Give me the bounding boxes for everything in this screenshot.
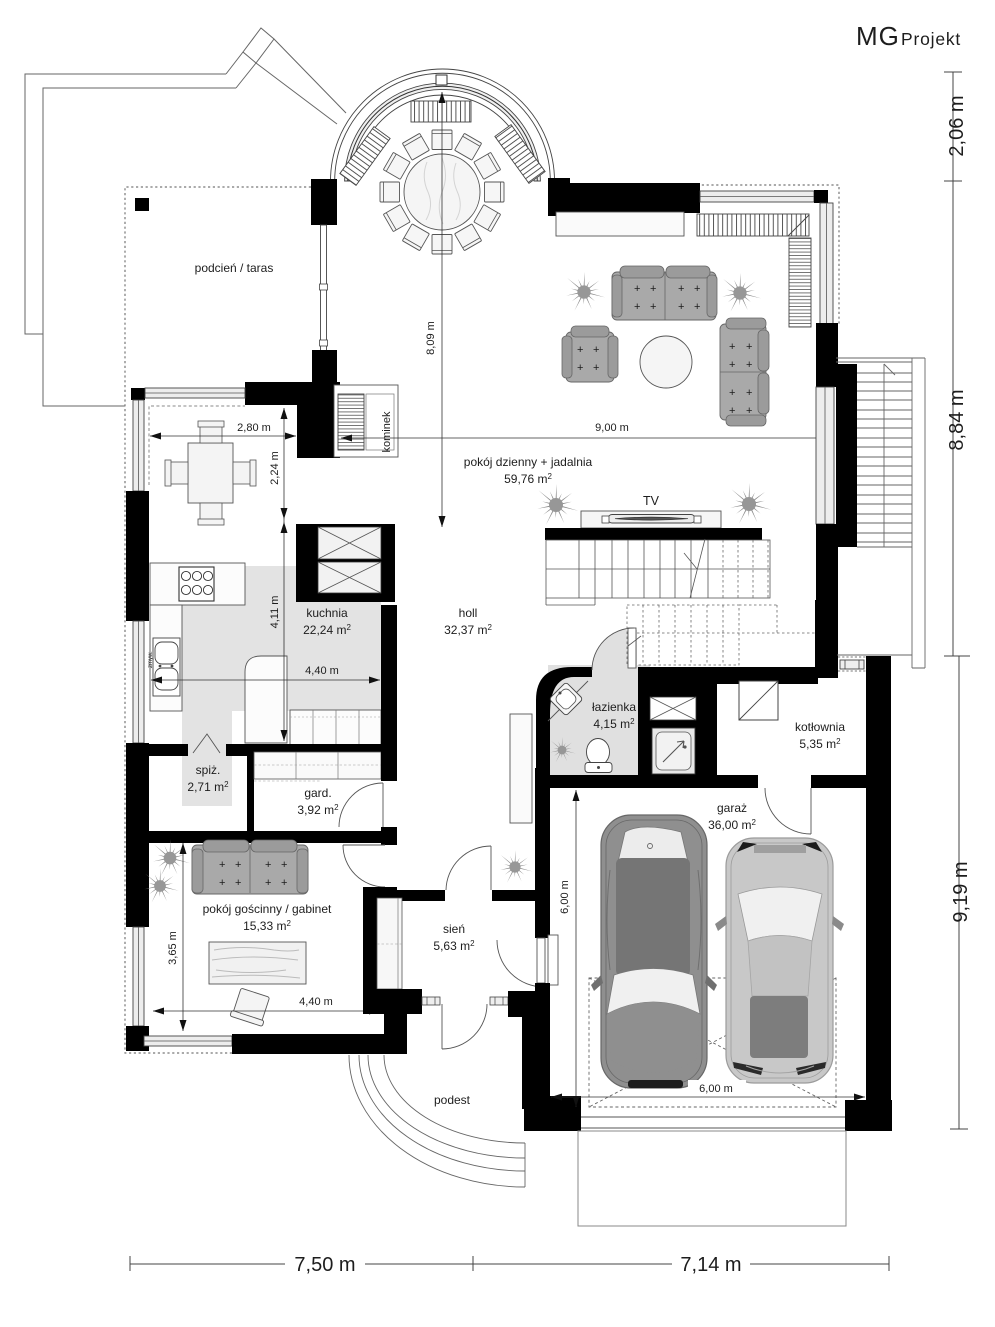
svg-text:podest: podest <box>434 1093 471 1107</box>
svg-text:4,40 m: 4,40 m <box>305 665 339 677</box>
svg-text:8,84 m: 8,84 m <box>946 389 968 450</box>
svg-text:59,76 m2: 59,76 m2 <box>504 472 552 486</box>
svg-text:32,37 m2: 32,37 m2 <box>444 623 492 637</box>
svg-text:+: + <box>577 344 583 356</box>
svg-text:gard.: gard. <box>304 786 331 800</box>
svg-text:+: + <box>746 387 752 399</box>
svg-text:+: + <box>650 283 656 295</box>
svg-text:MG: MG <box>856 21 900 51</box>
svg-text:+: + <box>634 283 640 295</box>
svg-text:+: + <box>678 283 684 295</box>
svg-text:pokój gościnny / gabinet: pokój gościnny / gabinet <box>203 902 332 916</box>
svg-text:+: + <box>219 859 225 871</box>
svg-text:7,50 m: 7,50 m <box>294 1254 355 1276</box>
svg-text:+: + <box>678 301 684 313</box>
svg-text:2,24 m: 2,24 m <box>269 451 281 485</box>
svg-text:+: + <box>281 877 287 889</box>
svg-text:+: + <box>265 859 271 871</box>
svg-text:kuchnia: kuchnia <box>306 606 348 620</box>
svg-text:+: + <box>235 877 241 889</box>
svg-text:podcień / taras: podcień / taras <box>195 261 274 275</box>
svg-text:4,11 m: 4,11 m <box>269 596 281 629</box>
svg-text:+: + <box>593 362 599 374</box>
svg-text:+: + <box>281 859 287 871</box>
svg-text:kominek: kominek <box>381 411 393 452</box>
svg-text:2,80 m: 2,80 m <box>237 422 271 434</box>
svg-text:+: + <box>729 387 735 399</box>
svg-text:3,92 m2: 3,92 m2 <box>297 803 339 817</box>
svg-text:4,15 m2: 4,15 m2 <box>593 717 635 731</box>
svg-text:zmyw.: zmyw. <box>148 651 154 668</box>
svg-text:6,00 m: 6,00 m <box>699 1083 733 1095</box>
svg-text:+: + <box>235 859 241 871</box>
svg-text:+: + <box>650 301 656 313</box>
svg-text:TV: TV <box>643 494 660 508</box>
svg-text:+: + <box>577 362 583 374</box>
svg-text:15,33 m2: 15,33 m2 <box>243 919 291 933</box>
svg-text:+: + <box>729 359 735 371</box>
svg-text:+: + <box>219 877 225 889</box>
svg-text:36,00 m2: 36,00 m2 <box>708 818 756 832</box>
svg-text:+: + <box>729 341 735 353</box>
svg-text:+: + <box>729 405 735 417</box>
svg-text:Projekt: Projekt <box>901 29 961 49</box>
svg-text:5,63 m2: 5,63 m2 <box>433 939 475 953</box>
svg-text:+: + <box>746 359 752 371</box>
svg-text:2,71 m2: 2,71 m2 <box>187 780 229 794</box>
svg-text:+: + <box>746 405 752 417</box>
svg-text:9,19 m: 9,19 m <box>950 861 972 922</box>
svg-text:22,24 m2: 22,24 m2 <box>303 623 351 637</box>
svg-text:+: + <box>746 341 752 353</box>
svg-text:3,65 m: 3,65 m <box>167 931 179 965</box>
svg-text:spiż.: spiż. <box>196 763 221 777</box>
svg-text:6,00 m: 6,00 m <box>559 880 571 914</box>
svg-text:garaż: garaż <box>717 801 747 815</box>
svg-text:holl: holl <box>459 606 478 620</box>
svg-text:5,35 m2: 5,35 m2 <box>799 737 841 751</box>
svg-text:+: + <box>634 301 640 313</box>
svg-text:kotłownia: kotłownia <box>795 720 845 734</box>
svg-text:7,14 m: 7,14 m <box>680 1254 741 1276</box>
svg-text:4,40 m: 4,40 m <box>299 996 333 1008</box>
svg-text:+: + <box>593 344 599 356</box>
svg-text:pokój dzienny + jadalnia: pokój dzienny + jadalnia <box>464 455 593 469</box>
svg-text:łazienka: łazienka <box>592 700 636 714</box>
svg-text:sień: sień <box>443 922 465 936</box>
svg-text:+: + <box>694 283 700 295</box>
svg-text:9,00 m: 9,00 m <box>595 422 629 434</box>
svg-text:+: + <box>694 301 700 313</box>
svg-text:2,06 m: 2,06 m <box>946 95 968 156</box>
svg-text:8,09 m: 8,09 m <box>425 321 437 355</box>
svg-text:+: + <box>265 877 271 889</box>
